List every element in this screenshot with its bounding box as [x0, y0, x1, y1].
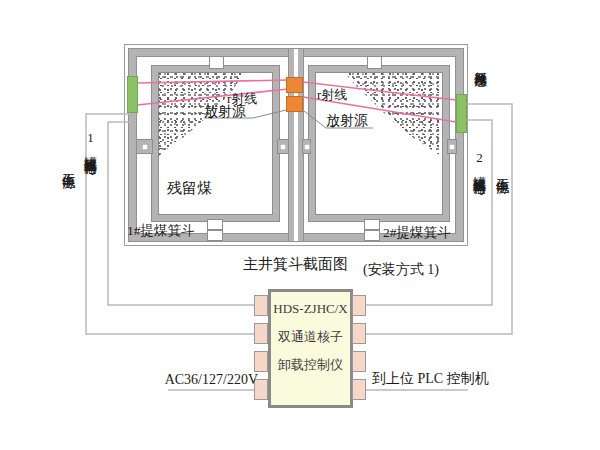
outlet-left-upper [207, 219, 223, 230]
controller-line3: 卸载控制仪 [268, 351, 353, 379]
controller-pin-left-2 [254, 323, 268, 344]
ac-power-label: AC36/127/220V [162, 372, 258, 388]
controller-pin-left-3 [254, 351, 268, 372]
brace-right-outer [447, 139, 457, 154]
right-signal-label: 2罐残留煤料厚信号 [470, 150, 488, 174]
left-signal-label: 1罐残留煤料厚信号 [81, 130, 99, 154]
outlet-right-lower [364, 230, 380, 241]
top-chute-left [209, 56, 224, 69]
outlet-right-upper [364, 219, 380, 230]
controller-model: HDS-ZJHC/X [268, 295, 353, 323]
brace-right-inner [302, 139, 311, 154]
outlet-left-lower [207, 230, 223, 241]
brace-left-outer [136, 139, 153, 154]
source-label-right: 放射源 [326, 112, 368, 130]
sensor-label: 料厚传感器 [471, 61, 489, 66]
thickness-sensor-right [456, 94, 467, 133]
brace-hole [141, 143, 148, 150]
radiation-source-upper [286, 77, 303, 93]
brace-left-inner [277, 139, 289, 154]
skip-label-right: 2#提煤箕斗 [383, 224, 451, 242]
radiation-source-lower [286, 96, 303, 112]
left-power-label: 工作电源 [59, 163, 77, 167]
brace-hole [280, 143, 287, 150]
residual-coal-label: 残留煤 [167, 179, 212, 198]
controller-pin-left-1 [254, 295, 268, 316]
diagram-title: 主井箕斗截面图 [243, 255, 348, 274]
source-label-left: 放射源 [204, 103, 246, 121]
controller-pin-right-1 [352, 295, 366, 316]
brace-hole [449, 143, 456, 150]
thickness-sensor-left [127, 76, 138, 113]
controller-pin-right-3 [352, 351, 366, 372]
controller-pin-right-2 [352, 323, 366, 344]
plc-output-label: 到上位 PLC 控制机 [372, 370, 489, 388]
controller-pin-right-4 [352, 379, 366, 400]
ray-label-right: r射线 [317, 86, 347, 104]
install-mode-note: (安装方式 1) [363, 261, 439, 279]
controller-line2: 双通道核子 [268, 323, 353, 351]
right-power-label: 工作电源 [493, 168, 511, 172]
skip-hopper-diagram: HDS-ZJHC/X 双通道核子 卸载控制仪 r射线 放射源 r射线 放射源 残… [0, 0, 600, 450]
controller-label: HDS-ZJHC/X 双通道核子 卸载控制仪 [268, 289, 353, 379]
brace-hole [303, 143, 310, 150]
top-chute-right [367, 56, 382, 69]
skip-label-left: 1#提煤箕斗 [127, 222, 195, 240]
